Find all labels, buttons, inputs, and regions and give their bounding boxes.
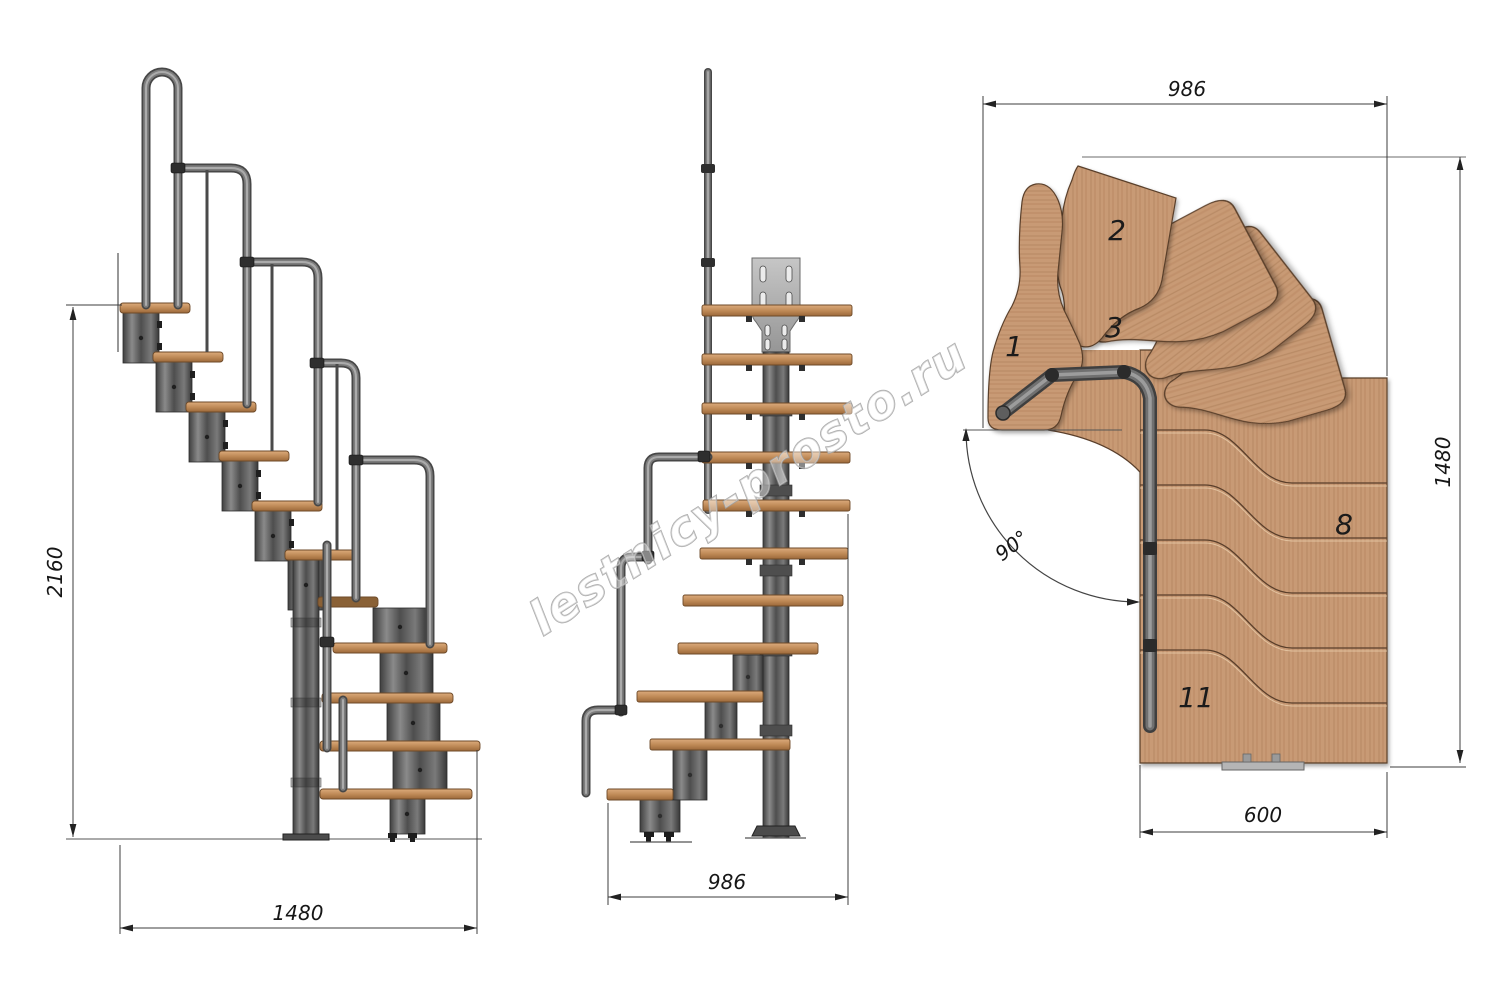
- tread: [219, 451, 289, 461]
- column-base-plate: [283, 834, 329, 840]
- side-height-dimension: 2160: [43, 547, 67, 598]
- tread: [650, 739, 790, 750]
- tread: [678, 643, 818, 654]
- plan-base-plate: [1222, 762, 1304, 770]
- front-column-base: [752, 826, 800, 836]
- front-width-dimension: 986: [708, 870, 746, 894]
- staircase-drawing: 2160 1480: [0, 0, 1500, 987]
- plan-bottom-width-dimension: 600: [1244, 803, 1282, 827]
- front-base-feet: [644, 832, 674, 842]
- drawing-sheet: 2160 1480: [0, 0, 1500, 987]
- side-width-dimension: 1480: [273, 901, 324, 925]
- turn-angle-annotation: [962, 428, 1140, 606]
- tread: [153, 352, 223, 362]
- tread: [637, 691, 763, 702]
- tread: [683, 595, 843, 606]
- tread: [702, 354, 852, 365]
- plan-base-tab: [1272, 754, 1280, 762]
- plan-right-height-dimension: 1480: [1431, 437, 1455, 488]
- tread: [285, 550, 355, 560]
- tread: [702, 305, 852, 316]
- side-elevation-view: 2160 1480: [43, 72, 482, 934]
- tread: [252, 501, 322, 511]
- step-label-2: 2: [1108, 214, 1126, 247]
- step-label-8: 8: [1335, 508, 1353, 541]
- angle-arc: [966, 430, 1138, 602]
- tread: [607, 789, 673, 800]
- plan-base-tab: [1243, 754, 1251, 762]
- lower-modules: [373, 608, 447, 834]
- step-label-1: 1: [1005, 330, 1023, 363]
- plan-top-width-dimension: 986: [1168, 77, 1206, 101]
- plan-view: 1 2 3 8 11 90°: [962, 77, 1466, 838]
- step-label-11: 11: [1178, 681, 1214, 714]
- tread: [700, 548, 848, 559]
- turn-angle-label: 90°: [990, 525, 1033, 566]
- step-label-3: 3: [1105, 311, 1123, 344]
